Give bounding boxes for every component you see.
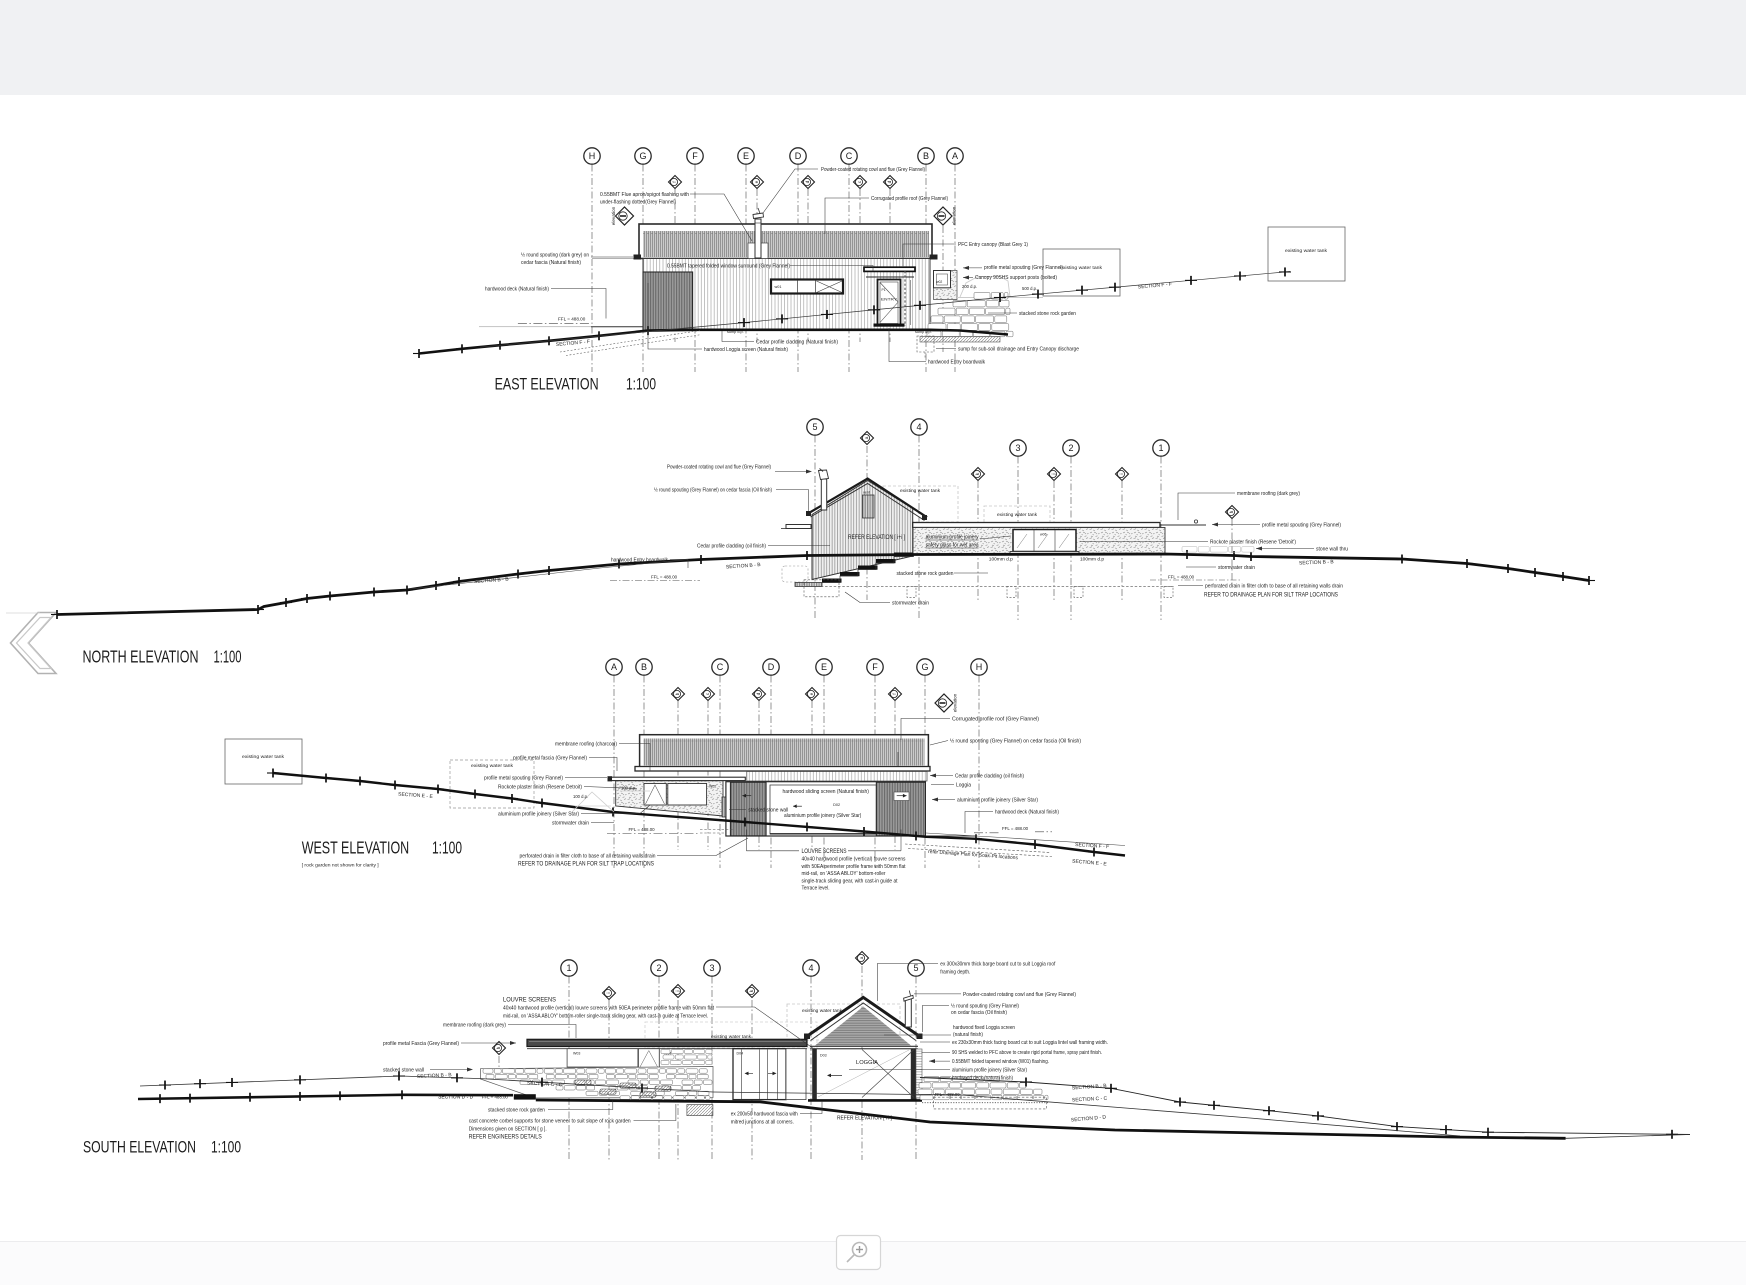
svg-text:hardwood deck (Natural finish): hardwood deck (Natural finish): [995, 810, 1059, 816]
svg-text:perforated drain in filter clo: perforated drain in filter cloth to base…: [520, 854, 656, 860]
svg-text:100mm d.p: 100mm d.p: [989, 557, 1014, 562]
svg-text:profile metal fascia (Grey Fla: profile metal fascia (Grey Flannel): [513, 756, 587, 762]
svg-text:H: H: [976, 662, 983, 672]
svg-text:stormwater drain: stormwater drain: [1218, 565, 1255, 571]
svg-text:E: E: [821, 662, 827, 672]
svg-text:4: 4: [916, 422, 921, 432]
svg-text:Corrugated profile roof (Grey: Corrugated profile roof (Grey Flannel): [871, 196, 948, 202]
svg-text:500 d.p.: 500 d.p.: [1022, 286, 1037, 291]
svg-text:FFL = 488.00: FFL = 488.00: [651, 575, 678, 580]
svg-text:PFC Entry canopy (Blast Grey 1: PFC Entry canopy (Blast Grey 1): [958, 242, 1028, 248]
svg-text:Cedar profile cladding (oil fi: Cedar profile cladding (oil finish): [697, 544, 766, 550]
svg-text:cedar fascia (Natural finish): cedar fascia (Natural finish): [521, 260, 581, 266]
svg-text:existing water tank: existing water tank: [997, 512, 1038, 517]
svg-text:stacked stone rock garden: stacked stone rock garden: [1019, 311, 1076, 317]
svg-text:C: C: [846, 151, 853, 161]
svg-text:Dimensions given on SECTION [: Dimensions given on SECTION [ g ].: [469, 1127, 547, 1133]
svg-text:G: G: [921, 662, 928, 672]
svg-text:membrane roofing (charcoal): membrane roofing (charcoal): [555, 742, 617, 748]
svg-text:100 d.p.: 100 d.p.: [573, 794, 588, 799]
svg-text:200 d.p.: 200 d.p.: [962, 284, 977, 289]
svg-text:sump for sub-soil drainage and: sump for sub-soil drainage and Entry Can…: [958, 347, 1079, 353]
svg-text:sump d.p.: sump d.p.: [915, 330, 932, 334]
svg-text:Rockote plaster finish (Resene: Rockote plaster finish (Resene Detroit): [498, 785, 582, 791]
svg-text:FFL = 488.00: FFL = 488.00: [1002, 826, 1029, 831]
svg-text:single-track sliding gear, wit: single-track sliding gear, with cast-in …: [802, 878, 899, 884]
svg-text:SECTION B - B: SECTION B - B: [1299, 559, 1335, 566]
svg-text:sump d.p.: sump d.p.: [727, 330, 744, 334]
svg-text:w06: w06: [1040, 533, 1047, 537]
svg-text:hardwood fixed Loggia screen: hardwood fixed Loggia screen: [953, 1025, 1015, 1031]
svg-text:Powder-coated rotating cowl an: Powder-coated rotating cowl and flue (Gr…: [963, 992, 1076, 998]
svg-text:Terrace level.: Terrace level.: [802, 886, 830, 892]
svg-text:REFER TO DRAINAGE PLAN FOR SIL: REFER TO DRAINAGE PLAN FOR SILT TRAP LOC…: [1204, 593, 1338, 599]
svg-text:½ round spouting (dark grey) o: ½ round spouting (dark grey) on: [521, 252, 589, 259]
svg-text:4: 4: [808, 963, 813, 973]
svg-text:hardwood sliding screen (Natur: hardwood sliding screen (Natural finish): [783, 789, 870, 795]
svg-text:w01: w01: [775, 285, 782, 289]
svg-text:perforated drain in filter clo: perforated drain in filter cloth to base…: [1205, 584, 1343, 590]
svg-text:on cedar fascia (Oil finish): on cedar fascia (Oil finish): [951, 1010, 1007, 1016]
svg-text:j: j: [1051, 474, 1056, 476]
svg-text:W02: W02: [709, 785, 716, 789]
svg-text:5: 5: [913, 963, 918, 973]
svg-text:Powder-coated rotating cowl an: Powder-coated rotating cowl and flue (Gr…: [667, 465, 771, 471]
svg-text:Cedar profile cladding (oil fi: Cedar profile cladding (oil finish): [955, 774, 1024, 780]
svg-text:stone wall thru: stone wall thru: [1316, 547, 1348, 553]
svg-text:aluminium profile joinery (Sil: aluminium profile joinery (Silver Star): [784, 813, 862, 819]
svg-text:FFL = 488.00: FFL = 488.00: [629, 827, 656, 832]
svg-text:D03: D03: [820, 1054, 827, 1058]
svg-text:G: G: [639, 151, 646, 161]
svg-text:FFL = 488.00: FFL = 488.00: [558, 317, 586, 322]
svg-text:cast concrete corbel supports: cast concrete corbel supports for stone …: [469, 1119, 631, 1125]
svg-text:hardwood deck (Natural finish): hardwood deck (Natural finish): [485, 287, 549, 293]
svg-text:[ rock garden not shown for cl: [ rock garden not shown for clarity ]: [302, 863, 379, 868]
svg-text:stormwater drain: stormwater drain: [892, 601, 929, 607]
svg-text:REFER ELEVATION [ i i ]: REFER ELEVATION [ i i ]: [837, 1116, 892, 1122]
svg-text:existing water tank: existing water tank: [802, 1008, 843, 1013]
svg-text:40x40 hardwood profile (vertic: 40x40 hardwood profile (vertical) louvre…: [503, 1006, 715, 1012]
svg-text:Canopy 90SHS support posts (bo: Canopy 90SHS support posts (bolted): [975, 275, 1057, 281]
svg-text:2: 2: [656, 963, 661, 973]
svg-text:2: 2: [1068, 443, 1073, 453]
svg-text:profile metal Fascia (Grey Fla: profile metal Fascia (Grey Flannel): [383, 1041, 459, 1047]
svg-text:SOUTH ELEVATION: SOUTH ELEVATION: [83, 1139, 196, 1157]
svg-text:0.55BMT folded tapered window: 0.55BMT folded tapered window (W01) flas…: [952, 1059, 1049, 1065]
svg-text:NORTH ELEVATION: NORTH ELEVATION: [83, 647, 199, 667]
svg-text:i: i: [606, 993, 611, 994]
svg-text:Cedar profile cladding (Natura: Cedar profile cladding (Natural finish): [756, 340, 838, 346]
svg-text:under-flashing dotted(Grey Fla: under-flashing dotted(Grey Flannel): [600, 200, 676, 206]
svg-text:profile metal spouting (Grey F: profile metal spouting (Grey Flannel): [984, 265, 1063, 271]
svg-text:profile metal spouting (Grey F: profile metal spouting (Grey Flannel): [1262, 523, 1341, 529]
svg-text:WEST ELEVATION: WEST ELEVATION: [302, 838, 410, 858]
svg-text:FFL = 488.00: FFL = 488.00: [482, 1094, 509, 1099]
svg-text:REFER ELEVATION [ i+i ]: REFER ELEVATION [ i+i ]: [848, 535, 905, 541]
svg-text:E: E: [743, 151, 749, 161]
svg-text:1: 1: [566, 963, 571, 973]
svg-text:A: A: [611, 662, 617, 672]
svg-text:0.55BMT Flue apron/spigot flas: 0.55BMT Flue apron/spigot flashing with: [600, 192, 689, 198]
svg-text:mitred junctions at all corner: mitred junctions at all corners.: [731, 1120, 794, 1126]
svg-text:elevation: elevation: [952, 206, 957, 225]
svg-text:F: F: [692, 151, 698, 161]
svg-text:framing depth.: framing depth.: [940, 970, 970, 976]
svg-text:existing water tank: existing water tank: [1060, 265, 1103, 270]
svg-text:3: 3: [1015, 443, 1020, 453]
svg-text:existing water tank: existing water tank: [471, 763, 514, 768]
svg-text:100mm d.p: 100mm d.p: [1080, 557, 1105, 562]
svg-text:D02: D02: [833, 803, 840, 807]
svg-text:stormwater drain: stormwater drain: [552, 821, 589, 827]
svg-text:stacked stone rock garden: stacked stone rock garden: [897, 571, 954, 577]
svg-text:aluminium profile joinery (Sil: aluminium profile joinery (Silver Star): [952, 1067, 1027, 1073]
svg-text:ENTRY: ENTRY: [881, 298, 898, 302]
svg-text:F: F: [872, 662, 878, 672]
svg-text:B: B: [923, 151, 929, 161]
svg-text:aluminium profile joinery (Sil: aluminium profile joinery (Silver Star): [957, 798, 1038, 804]
svg-text:ex 200x50 hardwood fascia with: ex 200x50 hardwood fascia with: [731, 1112, 798, 1118]
svg-text:LOUVRE SCREENS: LOUVRE SCREENS: [802, 849, 847, 855]
svg-text:REFER ENGINEERS DETAILS: REFER ENGINEERS DETAILS: [469, 1135, 542, 1141]
svg-text:mid-rail, on 'ASSA ABLOY' bott: mid-rail, on 'ASSA ABLOY' bottom-roller: [802, 871, 886, 877]
svg-text:EAST ELEVATION: EAST ELEVATION: [495, 376, 599, 394]
svg-text:3: 3: [709, 963, 714, 973]
svg-text:½ round spouting (Grey Flannel: ½ round spouting (Grey Flannel) on cedar…: [654, 487, 772, 494]
svg-text:Powder-coated rotating cowl an: Powder-coated rotating cowl and flue (Gr…: [821, 167, 925, 173]
svg-text:w02: w02: [936, 280, 942, 284]
svg-text:5: 5: [812, 422, 817, 432]
svg-text:1: 1: [1158, 443, 1163, 453]
svg-text:1:100: 1:100: [214, 647, 242, 667]
svg-text:safety glass for wet area: safety glass for wet area: [926, 543, 979, 549]
svg-text:stacked stone wall: stacked stone wall: [748, 808, 788, 814]
svg-text:90 SHS welded to PFC above to: 90 SHS welded to PFC above to create rig…: [952, 1050, 1102, 1056]
svg-text:mid-rail, on 'ASSA ABLOY' bott: mid-rail, on 'ASSA ABLOY' bottom-roller …: [503, 1014, 708, 1020]
svg-text:40x40 hardwood profile (vertic: 40x40 hardwood profile (vertical) louvre…: [802, 857, 906, 863]
svg-text:aluminium profile joinery (Sil: aluminium profile joinery (Silver Star): [498, 812, 579, 818]
svg-text:P1: P1: [882, 288, 886, 292]
svg-text:vent: vent: [863, 491, 870, 495]
svg-text:C: C: [717, 662, 724, 672]
svg-text:membrane roofing (dark grey): membrane roofing (dark grey): [1237, 491, 1300, 497]
svg-text:stacked stone rock garden: stacked stone rock garden: [488, 1108, 545, 1114]
svg-text:elevation: elevation: [953, 693, 958, 712]
svg-text:membrane roofing (dark grey): membrane roofing (dark grey): [443, 1023, 506, 1029]
svg-text:Loggia: Loggia: [956, 783, 971, 789]
svg-text:B: B: [641, 662, 647, 672]
svg-text:W03: W03: [573, 1052, 580, 1056]
svg-text:existing water tank: existing water tank: [900, 488, 941, 493]
svg-text:existing water tank: existing water tank: [711, 1034, 752, 1039]
svg-text:FFL = 488.00: FFL = 488.00: [1168, 575, 1195, 580]
svg-text:LOUVRE SCREENS: LOUVRE SCREENS: [503, 998, 556, 1004]
svg-text:Rockote plaster finish (Resene: Rockote plaster finish (Resene 'Detroit'…: [1210, 540, 1296, 546]
svg-text:ex 230x30mm thick facing board: ex 230x30mm thick facing board cut to su…: [952, 1040, 1108, 1046]
svg-text:hardwood Entry boardwalk: hardwood Entry boardwalk: [928, 360, 985, 366]
svg-text:1:100: 1:100: [432, 838, 462, 858]
svg-text:profile metal spouting (Grey F: profile metal spouting (Grey Flannel): [484, 776, 563, 782]
svg-text:1:100: 1:100: [211, 1139, 241, 1157]
svg-text:existing water tank: existing water tank: [1285, 248, 1328, 253]
svg-text:0.55BMT tapered folded window: 0.55BMT tapered folded window surround (…: [667, 264, 790, 270]
svg-text:½ round spouting (Grey Flannel: ½ round spouting (Grey Flannel): [951, 1003, 1019, 1010]
svg-text:Corrugated profile roof (Grey: Corrugated profile roof (Grey Flannel): [952, 717, 1039, 723]
svg-text:hardwood Loggia screen (Natura: hardwood Loggia screen (Natural finish): [704, 347, 788, 353]
svg-text:hardwood deck (natural finish): hardwood deck (natural finish): [952, 1075, 1013, 1081]
svg-text:elevation: elevation: [611, 206, 616, 225]
svg-text:stacked stone wall: stacked stone wall: [383, 1068, 424, 1074]
svg-text:1:100: 1:100: [626, 376, 656, 394]
svg-text:½ round spouting (Grey Flannel: ½ round spouting (Grey Flannel) on cedar…: [950, 738, 1081, 745]
svg-text:hardwood Entry boardwalk: hardwood Entry boardwalk: [611, 558, 668, 564]
svg-text:aluminium profile joinery: aluminium profile joinery: [926, 535, 979, 541]
svg-text:D04: D04: [737, 1052, 744, 1056]
svg-text:SECTION D - D: SECTION D - D: [438, 1095, 474, 1101]
svg-text:i: i: [1119, 474, 1124, 475]
svg-text:existing water tank: existing water tank: [242, 754, 285, 759]
svg-text:LOGGIA: LOGGIA: [856, 1060, 879, 1066]
svg-text:D: D: [768, 662, 775, 672]
svg-text:ex 300x30mm thick barge board: ex 300x30mm thick barge board cut to sui…: [940, 962, 1056, 968]
svg-text:j: j: [675, 991, 680, 993]
svg-text:A: A: [952, 151, 958, 161]
svg-text:H: H: [589, 151, 596, 161]
svg-text:(natural finish): (natural finish): [953, 1032, 983, 1038]
svg-text:D: D: [795, 151, 802, 161]
svg-text:REFER TO DRAINAGE PLAN FOR SIL: REFER TO DRAINAGE PLAN FOR SILT TRAP LOC…: [518, 862, 654, 868]
svg-text:with 50EA perimeter profile fr: with 50EA perimeter profile frame with 5…: [802, 864, 907, 870]
